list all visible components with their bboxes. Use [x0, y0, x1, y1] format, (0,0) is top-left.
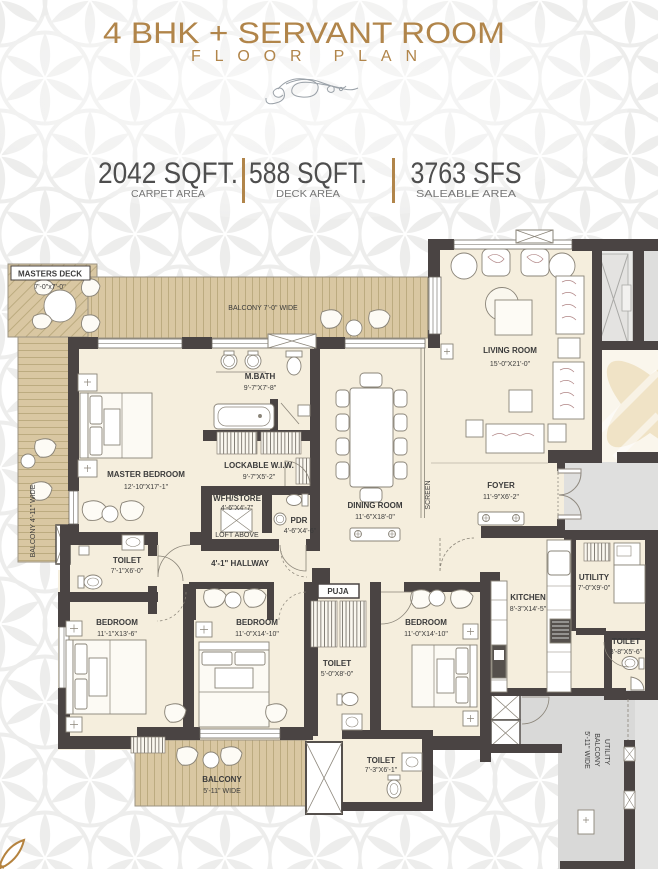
svg-text:LOFT ABOVE: LOFT ABOVE — [215, 532, 259, 539]
svg-text:7'-0"X9'-0": 7'-0"X9'-0" — [578, 585, 611, 592]
svg-text:BEDROOM: BEDROOM — [96, 618, 138, 627]
svg-text:7'-1"X6'-0": 7'-1"X6'-0" — [111, 568, 144, 575]
svg-text:2042 SQFT.: 2042 SQFT. — [98, 157, 238, 190]
svg-text:11'-6"X18'-0": 11'-6"X18'-0" — [355, 514, 395, 521]
svg-text:7'-0"x7'-0": 7'-0"x7'-0" — [34, 284, 66, 291]
svg-text:TOILET: TOILET — [367, 756, 395, 765]
svg-text:11'-1"X13'-6": 11'-1"X13'-6" — [97, 631, 137, 638]
svg-text:WFH/STORE: WFH/STORE — [213, 494, 262, 503]
svg-text:4'-6"X4'-7": 4'-6"X4'-7" — [221, 505, 254, 512]
svg-text:TOILET: TOILET — [612, 637, 640, 646]
svg-text:4 BHK + SERVANT ROOM: 4 BHK + SERVANT ROOM — [103, 17, 505, 50]
svg-text:BALCONY 7'-0" WIDE: BALCONY 7'-0" WIDE — [228, 305, 298, 312]
svg-text:BALCONY: BALCONY — [202, 775, 242, 784]
svg-text:4'-1" HALLWAY: 4'-1" HALLWAY — [211, 559, 270, 568]
svg-text:5'-11" WIDE: 5'-11" WIDE — [583, 731, 590, 769]
svg-text:BALCONY 4'-11" WIDE: BALCONY 4'-11" WIDE — [30, 484, 37, 557]
svg-text:8'-3"X14'-5": 8'-3"X14'-5" — [510, 606, 547, 613]
svg-text:KITCHEN: KITCHEN — [510, 593, 546, 602]
svg-text:9'-7"X5'-2": 9'-7"X5'-2" — [243, 474, 276, 481]
svg-text:SALEABLE AREA: SALEABLE AREA — [416, 189, 516, 200]
svg-text:SCREEN: SCREEN — [425, 480, 432, 509]
svg-text:BEDROOM: BEDROOM — [236, 618, 278, 627]
svg-text:UTILITY: UTILITY — [603, 739, 610, 765]
svg-text:11'-9"X6'-2": 11'-9"X6'-2" — [483, 494, 519, 501]
svg-text:LOCKABLE W.I.W.: LOCKABLE W.I.W. — [224, 461, 294, 470]
svg-text:9'-7"X7'-8": 9'-7"X7'-8" — [244, 385, 277, 392]
svg-text:TOILET: TOILET — [323, 659, 351, 668]
svg-text:TOILET: TOILET — [113, 556, 141, 565]
svg-text:5'-11" WIDE: 5'-11" WIDE — [203, 788, 241, 795]
svg-text:7'-3"X6'-1": 7'-3"X6'-1" — [365, 767, 398, 774]
svg-text:CARPET AREA: CARPET AREA — [131, 189, 205, 200]
svg-text:3763 SFS: 3763 SFS — [411, 157, 522, 190]
svg-text:PDR: PDR — [291, 516, 308, 525]
svg-text:12'-10"X17'-1": 12'-10"X17'-1" — [124, 484, 169, 491]
svg-text:588 SQFT.: 588 SQFT. — [249, 157, 367, 190]
svg-text:4'-6"X4'-6": 4'-6"X4'-6" — [284, 528, 317, 535]
svg-text:11'-0"X14'-10": 11'-0"X14'-10" — [235, 631, 279, 638]
svg-text:FOYER: FOYER — [487, 481, 515, 490]
svg-text:BALCONY: BALCONY — [593, 733, 600, 767]
svg-text:UTILITY: UTILITY — [579, 573, 610, 582]
svg-text:15'-0"X21'-0": 15'-0"X21'-0" — [490, 361, 531, 368]
svg-text:LIVING ROOM: LIVING ROOM — [483, 346, 537, 355]
svg-text:DECK AREA: DECK AREA — [276, 189, 340, 200]
svg-text:PUJA: PUJA — [327, 587, 349, 596]
svg-text:M.BATH: M.BATH — [245, 372, 276, 381]
svg-text:11'-0"X14'-10": 11'-0"X14'-10" — [404, 631, 448, 638]
svg-text:BEDROOM: BEDROOM — [405, 618, 447, 627]
svg-text:DINING ROOM: DINING ROOM — [347, 501, 402, 510]
svg-text:MASTER BEDROOM: MASTER BEDROOM — [107, 470, 185, 479]
svg-text:5'-0"X8'-0": 5'-0"X8'-0" — [321, 671, 354, 678]
svg-text:3'-8"X5'-6": 3'-8"X5'-6" — [610, 649, 643, 656]
svg-text:MASTERS DECK: MASTERS DECK — [18, 270, 82, 279]
